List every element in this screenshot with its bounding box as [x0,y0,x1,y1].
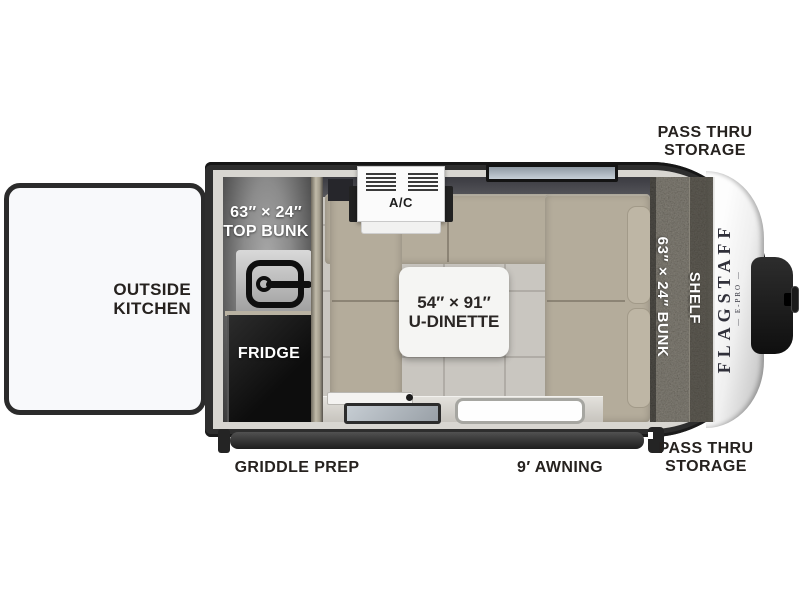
griddle-icon [344,403,441,424]
pass-thru-bottom-line2: STORAGE [630,458,782,476]
cushion-seam-left [332,300,400,302]
shelf-label: SHELF [685,263,703,333]
u-dinette-size: 54″ × 91″ [399,293,509,312]
pass-thru-top-line2: STORAGE [625,142,785,160]
ac-unit-icon: A/C [357,166,445,222]
ac-vent-group-right [408,173,438,191]
outside-kitchen-box: OUTSIDE KITCHEN [4,183,206,415]
dinette-pillow-upper [627,206,651,304]
awning-bracket-notch [648,432,653,439]
pass-thru-bottom-line1: PASS THRU [630,440,782,458]
dinette-pillow-lower [627,308,651,408]
ac-label: A/C [358,195,444,210]
hatch-handle-icon [266,281,312,288]
fridge-box [227,315,311,422]
u-dinette-label: 54″ × 91″ U-DINETTE [399,293,509,331]
top-bunk-label: 63″ × 24″ TOP BUNK [214,203,318,241]
entry-door-mat [455,398,585,424]
rear-bunk-label: 63″ × 24″ BUNK [653,227,671,367]
pass-thru-storage-label-bottom: PASS THRU STORAGE [630,440,782,476]
awning-bracket-left [218,429,230,453]
outside-kitchen-label: OUTSIDE KITCHEN [113,280,191,318]
ac-lower-lip [361,222,441,234]
pass-thru-storage-label-top: PASS THRU STORAGE [625,124,785,160]
ac-vent-group-left [366,173,396,191]
top-bunk-name: TOP BUNK [214,222,318,241]
pass-thru-top-line1: PASS THRU [625,124,785,142]
window-icon [486,164,618,182]
fridge-label: FRIDGE [227,345,311,363]
brand-name: FLAGSTAFF [714,218,734,378]
top-bunk-size: 63″ × 24″ [214,203,318,222]
outside-kitchen-line1: OUTSIDE [113,280,191,299]
ac-vents-icon [366,173,438,191]
u-dinette-name: U-DINETTE [399,312,509,331]
u-dinette-table: 54″ × 91″ U-DINETTE [399,267,509,357]
brand-model: — E-PRO — [734,218,742,378]
outside-kitchen-line2: KITCHEN [113,299,191,318]
brand-logo: FLAGSTAFF — E-PRO — [714,218,754,378]
griddle-lid-knob-icon [406,394,413,401]
floorplan-canvas: OUTSIDE KITCHEN [0,0,800,600]
tongue-jack-knob-icon [791,286,799,313]
awning-bar [230,432,644,449]
awning-label: 9′ AWNING [480,459,640,477]
griddle-prep-label: GRIDDLE PREP [216,459,378,477]
cushion-seam-right [547,300,625,302]
